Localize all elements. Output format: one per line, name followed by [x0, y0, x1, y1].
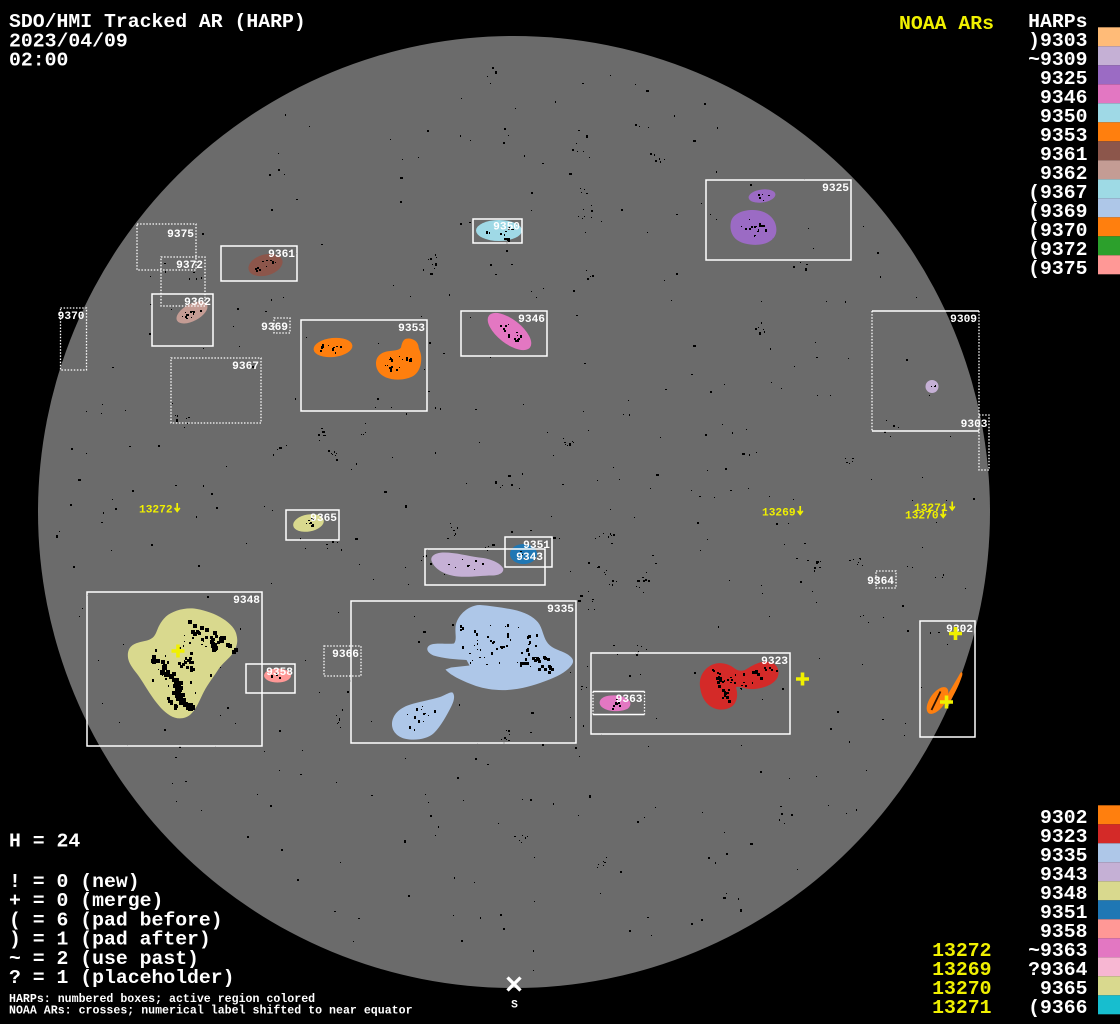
- svg-text:9361: 9361: [268, 249, 295, 261]
- svg-text:NOAA ARs: NOAA ARs: [899, 13, 994, 35]
- svg-text:13272: 13272: [139, 505, 173, 517]
- svg-text:9309: 9309: [950, 314, 977, 326]
- svg-text:9351: 9351: [523, 540, 550, 552]
- svg-text:9369: 9369: [261, 322, 288, 334]
- svg-text:02:00: 02:00: [9, 50, 68, 72]
- svg-text:9350: 9350: [493, 222, 520, 234]
- svg-text:9362: 9362: [184, 297, 211, 309]
- svg-text:9343: 9343: [516, 552, 543, 564]
- svg-text:(9375: (9375: [1028, 258, 1087, 280]
- svg-text:9367: 9367: [232, 361, 259, 373]
- svg-text:9372: 9372: [176, 260, 203, 272]
- svg-text:9348: 9348: [233, 595, 260, 607]
- svg-text:9365: 9365: [310, 513, 337, 525]
- svg-text:9323: 9323: [761, 656, 788, 668]
- svg-text:H = 24: H = 24: [9, 831, 80, 853]
- svg-text:NOAA ARs: crosses; numerical l: NOAA ARs: crosses; numerical label shift…: [9, 1005, 413, 1018]
- svg-text:9335: 9335: [547, 604, 574, 616]
- svg-text:9364: 9364: [867, 576, 894, 588]
- svg-text:9358: 9358: [266, 667, 293, 679]
- svg-text:9346: 9346: [518, 314, 545, 326]
- svg-text:(9366: (9366: [1028, 997, 1087, 1019]
- svg-text:9353: 9353: [398, 323, 425, 335]
- svg-text:S: S: [511, 1000, 518, 1012]
- svg-text:9325: 9325: [822, 183, 849, 195]
- svg-text:13270: 13270: [905, 511, 939, 523]
- svg-text:9366: 9366: [332, 649, 359, 661]
- svg-text:9370: 9370: [58, 311, 85, 323]
- svg-text:13271: 13271: [932, 997, 991, 1019]
- svg-text:9303: 9303: [961, 419, 988, 431]
- svg-text:13269: 13269: [762, 508, 796, 520]
- svg-text:9363: 9363: [616, 694, 643, 706]
- svg-text:9375: 9375: [167, 229, 194, 241]
- svg-text:? = 1 (placeholder): ? = 1 (placeholder): [9, 967, 235, 989]
